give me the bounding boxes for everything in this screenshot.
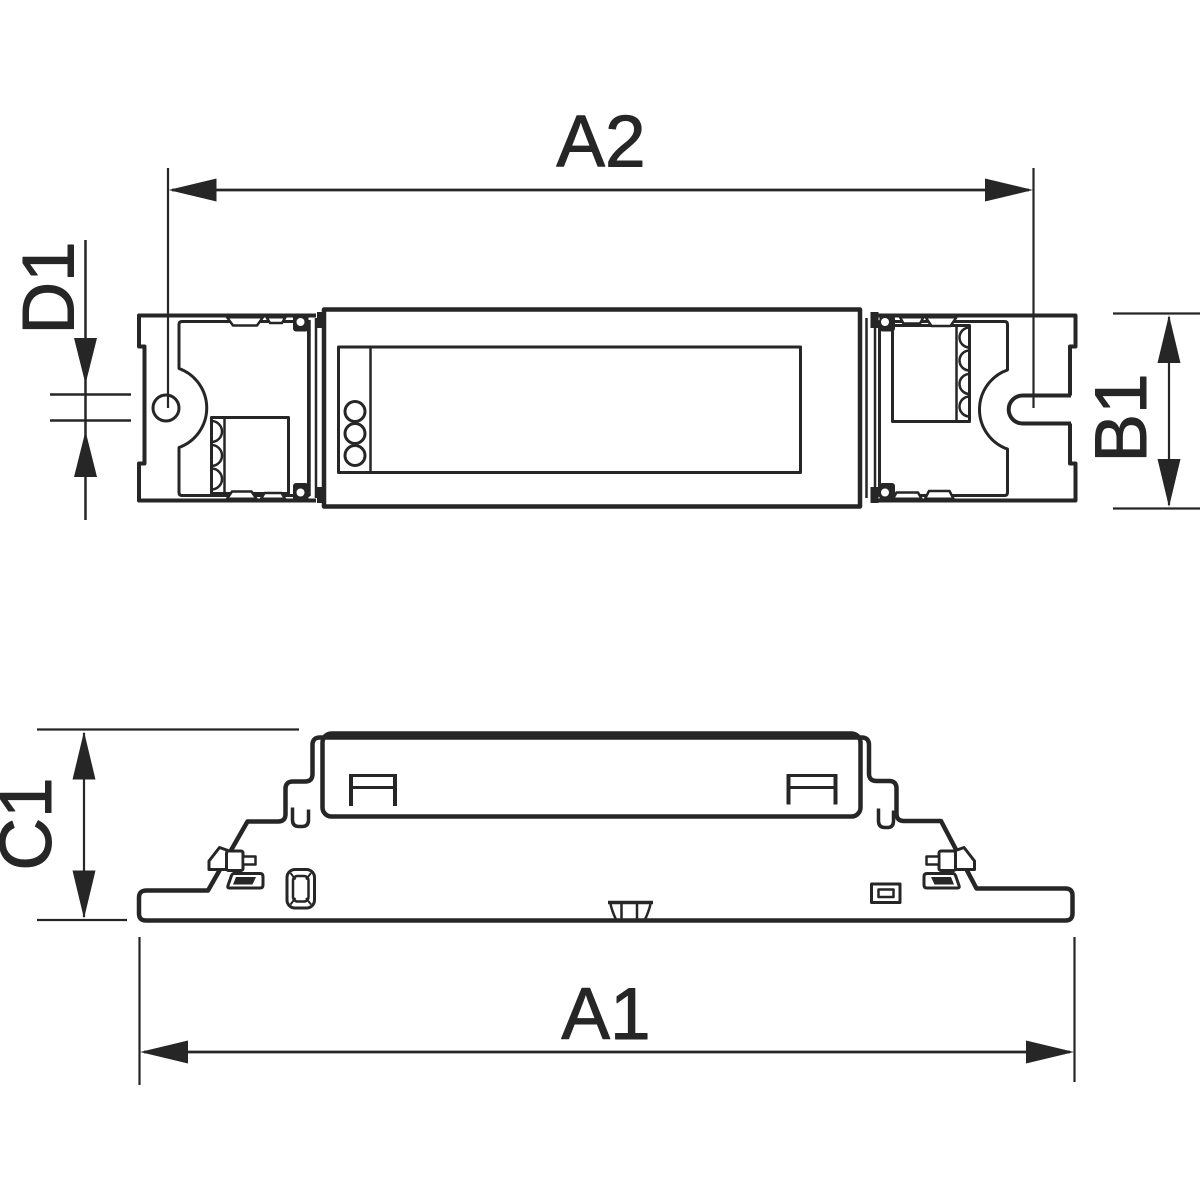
svg-text:B1: B1 — [1081, 373, 1162, 462]
svg-text:C1: C1 — [0, 777, 67, 870]
svg-text:A2: A2 — [556, 102, 645, 183]
svg-text:A1: A1 — [561, 974, 650, 1055]
svg-text:D1: D1 — [9, 241, 90, 334]
